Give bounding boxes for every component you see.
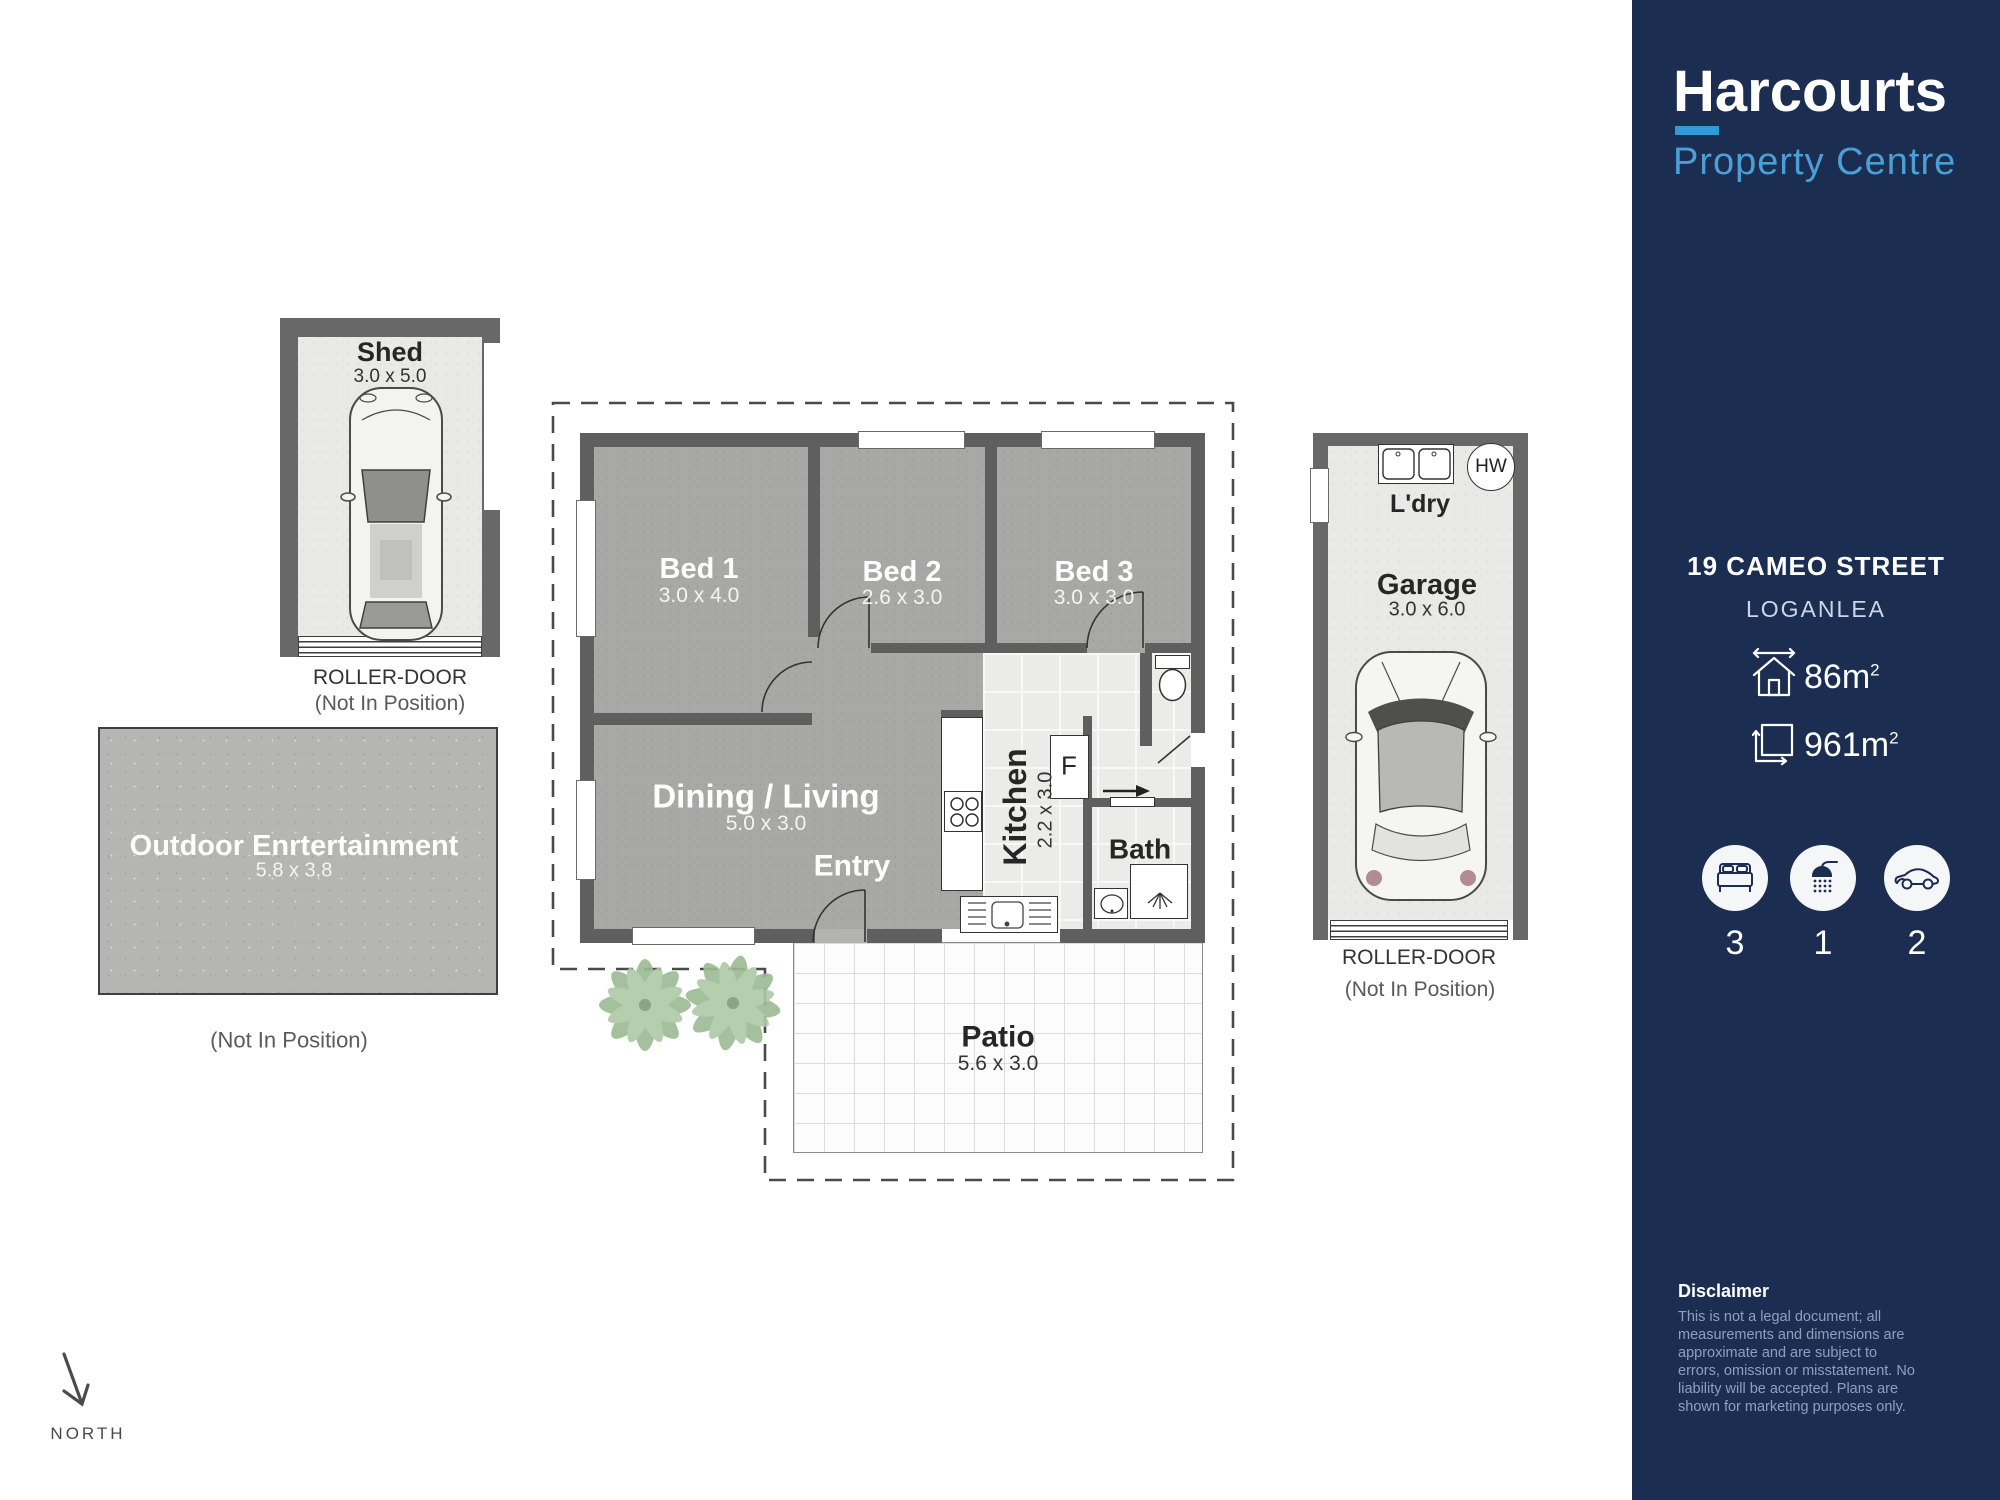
kitchen-sink-icon xyxy=(961,897,1059,934)
wall-left-1 xyxy=(580,433,594,500)
garage-roller-door xyxy=(1330,920,1508,940)
wall-bottom-3 xyxy=(867,929,942,943)
laundry-tub xyxy=(1378,444,1454,484)
entry-threshold xyxy=(815,929,867,943)
garage-note: (Not In Position) xyxy=(1345,979,1496,1001)
disclaimer-line: measurements and dimensions are xyxy=(1678,1326,1958,1344)
address-line2: LOGANLEA xyxy=(1632,596,2000,623)
bed3-window xyxy=(1041,431,1155,449)
hot-water-label: HW xyxy=(1475,456,1507,478)
bed3-dims: 3.0 x 3.0 xyxy=(1054,587,1135,609)
address-line1: 19 CAMEO STREET xyxy=(1632,551,2000,582)
wall-right-1 xyxy=(1191,433,1205,733)
bed2-dims: 2.6 x 3.0 xyxy=(862,587,943,609)
disclaimer-title: Disclaimer xyxy=(1678,1281,1769,1302)
north-label: NORTH xyxy=(28,1424,148,1444)
shed-wall-top xyxy=(280,318,500,337)
cars-icon xyxy=(1884,845,1950,911)
shower-head-icon xyxy=(1131,865,1189,920)
land-area-number: 961m xyxy=(1804,726,1889,764)
garage-window xyxy=(1310,468,1329,523)
bath-label: Bath xyxy=(1109,834,1171,863)
wall-bed23-bottom-2 xyxy=(1145,643,1191,653)
shed-roller-door xyxy=(298,636,482,657)
wall-bath-top-1 xyxy=(1092,798,1110,807)
bed3-label: Bed 3 xyxy=(1055,557,1134,587)
baths-icon xyxy=(1790,845,1856,911)
cooktop xyxy=(944,791,982,832)
wall-top-2 xyxy=(965,433,1041,447)
disclaimer-line: errors, omission or misstatement. No xyxy=(1678,1362,1958,1380)
dining-window xyxy=(576,780,596,880)
land-area-icon xyxy=(1752,722,1796,766)
dining-dims: 5.0 x 3.0 xyxy=(726,813,807,835)
bath-vanity xyxy=(1094,888,1128,919)
floorplan-page: Shed 3.0 x 5.0 ROLLER-DOOR (Not In Posit… xyxy=(0,0,2000,1500)
floor-area-number: 86m xyxy=(1804,658,1870,696)
shed-wall-left xyxy=(280,318,298,657)
bed1-dims: 3.0 x 4.0 xyxy=(659,585,740,607)
kitchen-sink xyxy=(960,896,1058,933)
wall-top-1 xyxy=(580,433,858,447)
disclaimer-line: This is not a legal document; all xyxy=(1678,1308,1958,1326)
beds-icon xyxy=(1702,845,1768,911)
bed2-window xyxy=(858,431,965,449)
wall-left-2 xyxy=(580,637,594,780)
wall-toilet-nook xyxy=(1140,653,1152,746)
disclaimer-line: liability will be accepted. Plans are xyxy=(1678,1380,1958,1398)
kitchen-dims: 2.2 x 3.0 xyxy=(1036,772,1057,849)
vanity-basin-icon xyxy=(1095,889,1129,920)
dining-label: Dining / Living xyxy=(652,780,879,815)
wall-bed1-bottom xyxy=(594,713,812,725)
land-area-sup: 2 xyxy=(1889,729,1898,748)
patio-label: Patio xyxy=(961,1021,1034,1053)
north-arrow-icon xyxy=(64,1354,88,1404)
garage-rollerdoor-label: ROLLER-DOOR xyxy=(1342,947,1496,969)
bed1-window xyxy=(576,500,596,637)
brand-name: Harcourts xyxy=(1673,58,1947,125)
hot-water-unit: HW xyxy=(1467,443,1515,491)
beds-count: 3 xyxy=(1710,924,1760,963)
wall-bed1-bed2 xyxy=(808,447,820,637)
shower xyxy=(1130,864,1188,919)
outdoor-dims: 5.8 x 3.8 xyxy=(256,861,333,882)
shed-dims: 3.0 x 5.0 xyxy=(354,367,427,387)
toilet-bowl-icon xyxy=(1155,669,1191,705)
laundry-label: L'dry xyxy=(1390,491,1450,517)
dining-bottom-window xyxy=(632,927,755,945)
cars-count: 2 xyxy=(1892,924,1942,963)
bed2-label: Bed 2 xyxy=(863,557,942,587)
floor-area-value: 86m2 xyxy=(1804,658,1880,697)
toilet-cistern xyxy=(1155,655,1190,669)
brand-underline xyxy=(1675,126,1719,135)
outdoor-label: Outdoor Enrtertainment xyxy=(130,831,459,861)
palm-tree-icons xyxy=(599,953,783,1052)
fridge-label: F xyxy=(1061,752,1077,779)
garage-label: Garage xyxy=(1377,570,1477,600)
land-area-value: 961m2 xyxy=(1804,726,1899,765)
garage-dims: 3.0 x 6.0 xyxy=(1389,600,1466,621)
bath-sliding-door xyxy=(1110,797,1155,807)
baths-count: 1 xyxy=(1798,924,1848,963)
shed-rollerdoor-label: ROLLER-DOOR xyxy=(313,667,467,689)
kitchen-label: Kitchen xyxy=(999,748,1033,865)
cooktop-burners-icon xyxy=(945,792,983,833)
shed-label: Shed xyxy=(357,338,423,366)
side-door-opening xyxy=(1191,733,1205,767)
floor-area-sup: 2 xyxy=(1870,661,1879,680)
patio-dims: 5.6 x 3.0 xyxy=(958,1053,1039,1075)
wall-bottom-1 xyxy=(580,929,632,943)
wall-right-2 xyxy=(1191,767,1205,943)
entry-label: Entry xyxy=(814,850,891,882)
bed1-label: Bed 1 xyxy=(660,554,739,584)
wall-bed23-bottom-1 xyxy=(871,643,1087,653)
sidebar: Harcourts Property Centre 19 CAMEO STREE… xyxy=(1632,0,2000,1500)
shed-door-opening xyxy=(484,343,502,510)
disclaimer-line: approximate and are subject to xyxy=(1678,1344,1958,1362)
brand-tagline: Property Centre xyxy=(1673,141,1956,184)
wall-bottom-4 xyxy=(1060,929,1205,943)
wall-bath-top-2 xyxy=(1155,798,1191,807)
garage-wall-right xyxy=(1513,433,1528,940)
wall-bottom-2 xyxy=(755,929,815,943)
disclaimer-line: shown for marketing purposes only. xyxy=(1678,1398,1958,1416)
shed-note: (Not In Position) xyxy=(315,693,466,715)
laundry-tub-icon xyxy=(1379,445,1455,485)
wall-bed2-bed3 xyxy=(985,447,997,653)
floor-area-icon xyxy=(1750,648,1798,698)
outdoor-note: (Not In Position) xyxy=(210,1028,368,1051)
